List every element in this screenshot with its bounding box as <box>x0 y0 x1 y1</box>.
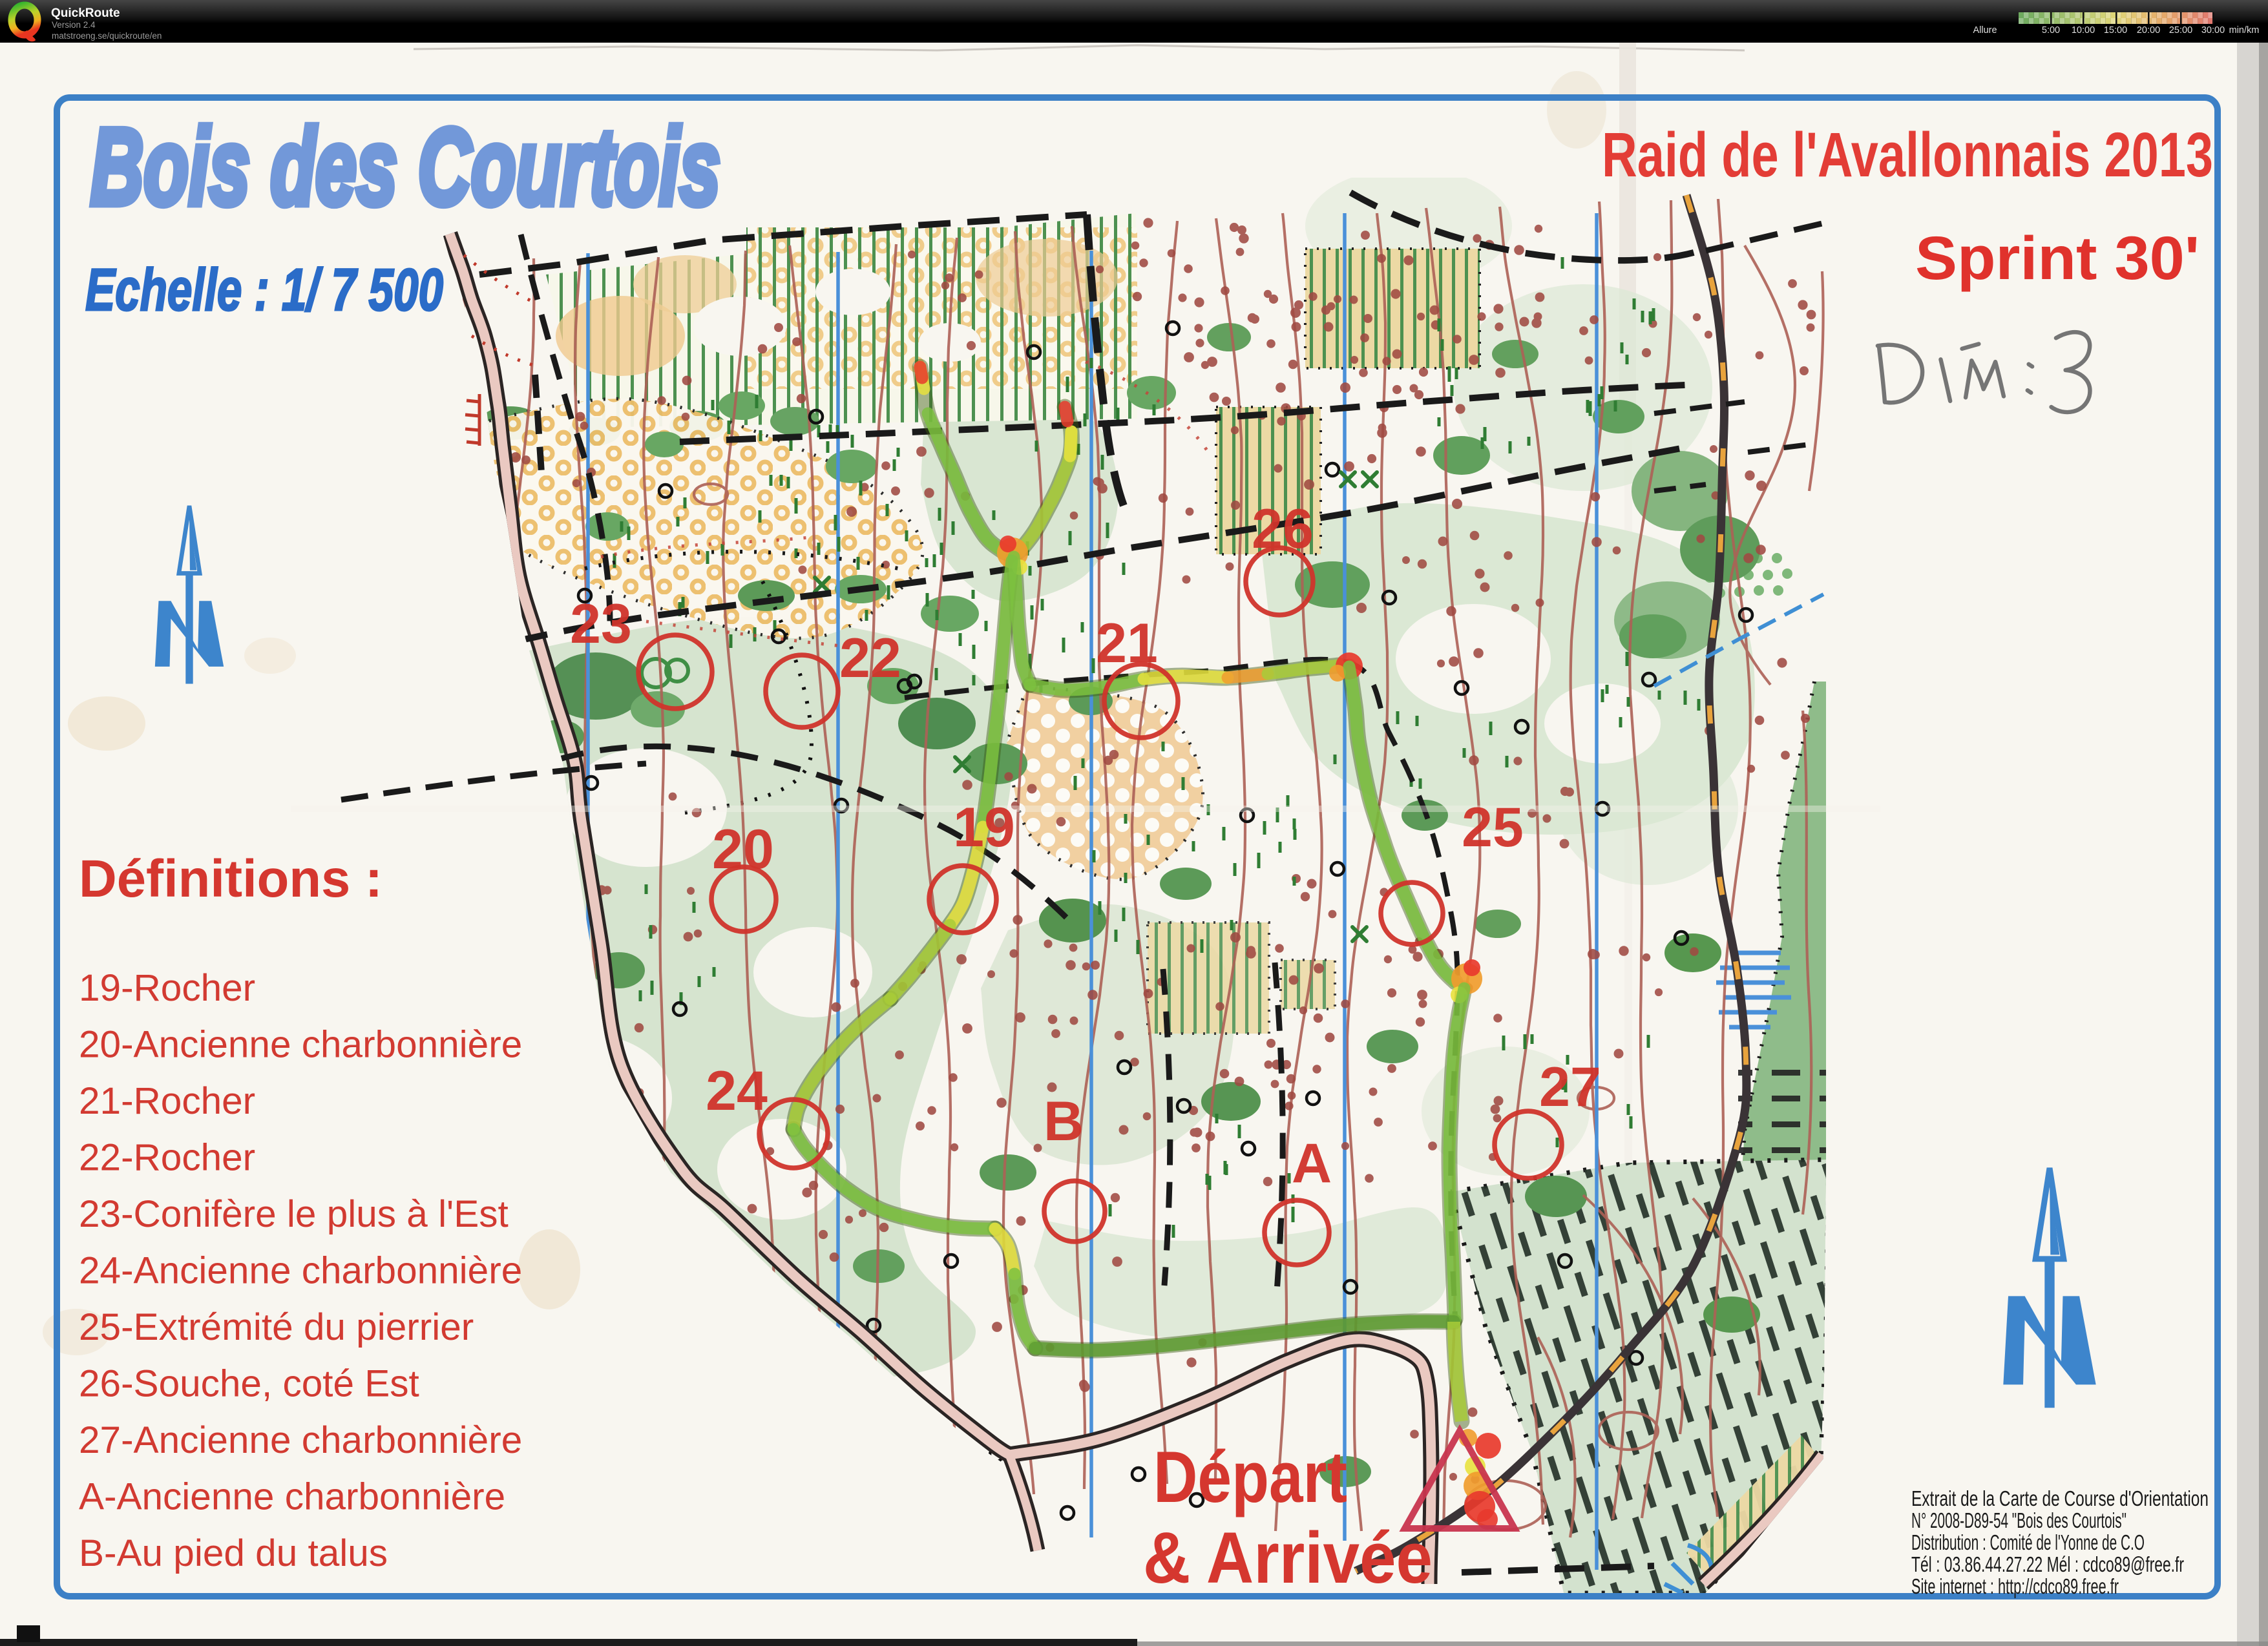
svg-text:matstroeng.se/quickroute/en: matstroeng.se/quickroute/en <box>52 31 162 41</box>
svg-text:Version 2.4: Version 2.4 <box>52 20 96 30</box>
svg-text:Raid de l'Avallonnais 2013: Raid de l'Avallonnais 2013 <box>1602 120 2213 190</box>
svg-text:24-Ancienne charbonnière: 24-Ancienne charbonnière <box>79 1250 522 1292</box>
svg-text:23-Conifère le plus à l'Est: 23-Conifère le plus à l'Est <box>79 1193 509 1235</box>
svg-text:21-Rocher: 21-Rocher <box>79 1080 255 1122</box>
svg-text:27: 27 <box>1539 1056 1601 1118</box>
svg-text:B-Au pied du talus: B-Au pied du talus <box>79 1532 388 1574</box>
svg-text:QuickRoute: QuickRoute <box>51 6 120 20</box>
svg-text:22: 22 <box>839 627 901 689</box>
svg-text:25:00: 25:00 <box>2169 25 2192 36</box>
svg-text:30:00: 30:00 <box>2201 25 2225 36</box>
svg-text:Définitions :: Définitions : <box>79 849 383 908</box>
svg-text:23: 23 <box>570 593 632 655</box>
svg-text:22-Rocher: 22-Rocher <box>79 1137 255 1179</box>
svg-text:25-Extrémité du pierrier: 25-Extrémité du pierrier <box>79 1306 474 1348</box>
svg-text:5:00: 5:00 <box>2042 25 2060 36</box>
svg-text:Distribution : Comité de l'Yon: Distribution : Comité de l'Yonne de C.O <box>1911 1530 2145 1554</box>
svg-text:Allure: Allure <box>1973 25 1997 36</box>
svg-text:Sprint 30': Sprint 30' <box>1915 224 2200 293</box>
svg-text:A-Ancienne charbonnière: A-Ancienne charbonnière <box>79 1476 505 1518</box>
svg-text:19-Rocher: 19-Rocher <box>79 967 255 1009</box>
svg-text:B: B <box>1044 1090 1084 1152</box>
svg-text:20:00: 20:00 <box>2137 25 2160 36</box>
svg-text:26: 26 <box>1252 498 1314 560</box>
svg-text:20: 20 <box>712 818 774 880</box>
svg-text:min/km: min/km <box>2229 25 2260 36</box>
svg-text:10:00: 10:00 <box>2072 25 2095 36</box>
svg-text:24: 24 <box>706 1060 768 1122</box>
svg-text:20-Ancienne charbonnière: 20-Ancienne charbonnière <box>79 1024 522 1066</box>
svg-text:19: 19 <box>953 797 1015 859</box>
svg-text:A: A <box>1292 1132 1332 1194</box>
svg-text:Echelle : 1/ 7 500: Echelle : 1/ 7 500 <box>85 257 443 323</box>
svg-text:26-Souche, coté Est: 26-Souche, coté Est <box>79 1363 419 1405</box>
svg-text:25: 25 <box>1462 797 1524 859</box>
svg-text:Extrait de la Carte de Course: Extrait de la Carte de Course d'Orientat… <box>1911 1486 2209 1510</box>
svg-text:Site internet : http://cdco89.: Site internet : http://cdco89.free.fr <box>1911 1574 2119 1598</box>
svg-text:N° 2008-D89-54 "Bois des Co: N° 2008-D89-54 "Bois des Courtois" <box>1911 1508 2126 1532</box>
svg-text:Bois des Courtois: Bois des Courtois <box>90 106 720 227</box>
svg-text:15:00: 15:00 <box>2104 25 2127 36</box>
svg-text:27-Ancienne charbonnière: 27-Ancienne charbonnière <box>79 1419 522 1461</box>
svg-text:21: 21 <box>1096 612 1158 674</box>
svg-text:Tél : 03.86.44.27.22 Mél : cd: Tél : 03.86.44.27.22 Mél : cdco89@free.f… <box>1911 1552 2184 1576</box>
svg-text:Départ: Départ <box>1153 1437 1347 1517</box>
svg-text:& Arrivée: & Arrivée <box>1143 1517 1433 1598</box>
